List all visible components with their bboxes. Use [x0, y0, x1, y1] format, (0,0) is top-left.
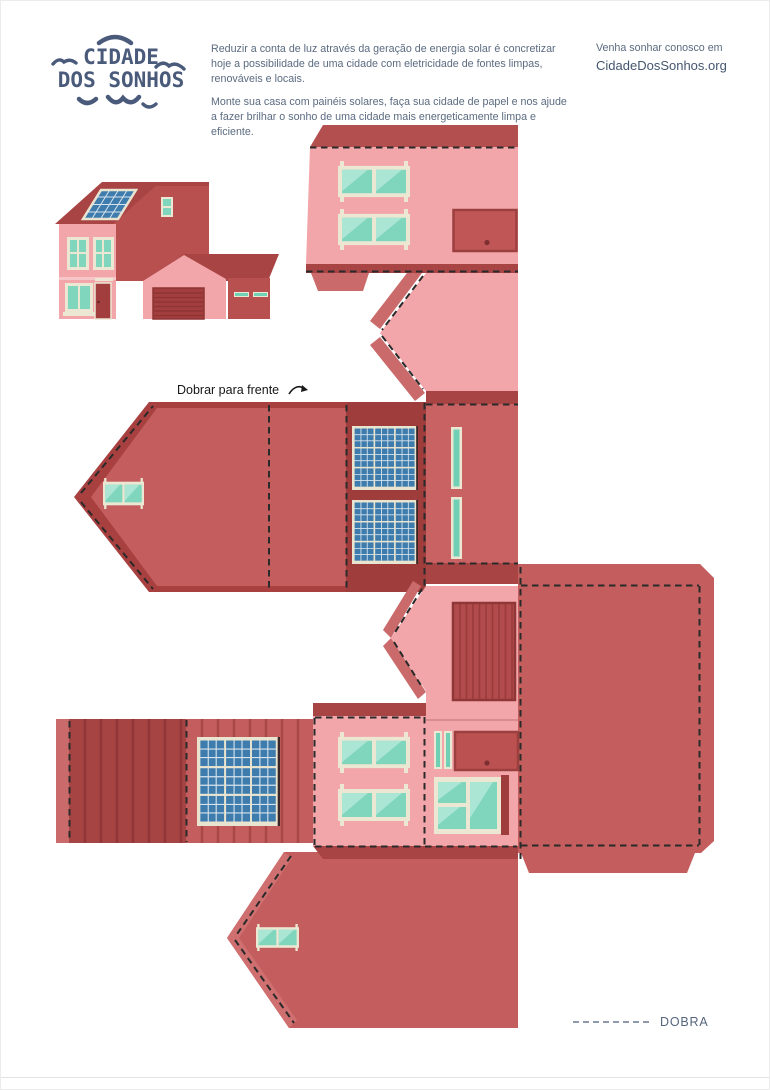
dashed-line-sample: [573, 1021, 649, 1023]
corner-window: [434, 777, 501, 834]
piece-bottom-gable: [227, 852, 518, 1028]
door-panel: [455, 732, 518, 770]
window: [338, 161, 410, 202]
piece-front-wall-upper: [306, 125, 518, 291]
window: [256, 924, 299, 951]
piece-right-roof-panel: [518, 564, 714, 873]
page-edge-line: [1, 1077, 769, 1078]
wall-pillar: [501, 775, 509, 835]
door: [454, 210, 517, 251]
fold-legend: DOBRA: [573, 1015, 708, 1029]
papercraft-template: [1, 1, 770, 1090]
slit-window: [451, 497, 462, 559]
window: [338, 784, 410, 826]
garage-door: [153, 288, 204, 319]
piece-left-roof: [74, 402, 426, 593]
solar-panel: [197, 737, 280, 826]
fold-forward-label: Dobrar para frente: [177, 383, 309, 397]
window: [338, 209, 410, 250]
solar-panel: [352, 500, 418, 564]
piece-upper-gable: [370, 273, 518, 401]
papercraft-sheet: CIDADE DOS SONHOS Reduzir a conta de luz…: [0, 0, 770, 1090]
garage-door: [453, 603, 515, 700]
piece-garage-side: [56, 719, 313, 843]
attic-window: [161, 197, 173, 217]
fold-arrow-icon: [287, 383, 309, 397]
assembled-house-illustration: [55, 182, 279, 319]
fold-forward-text: Dobrar para frente: [177, 383, 279, 397]
window: [338, 732, 410, 773]
piece-side-wall-strip: [426, 391, 518, 584]
house-door: [95, 278, 113, 319]
fold-tab: [313, 846, 518, 859]
fold-legend-text: DOBRA: [660, 1015, 708, 1029]
slit-window: [451, 427, 462, 489]
window: [103, 478, 144, 509]
solar-panel: [352, 426, 418, 490]
